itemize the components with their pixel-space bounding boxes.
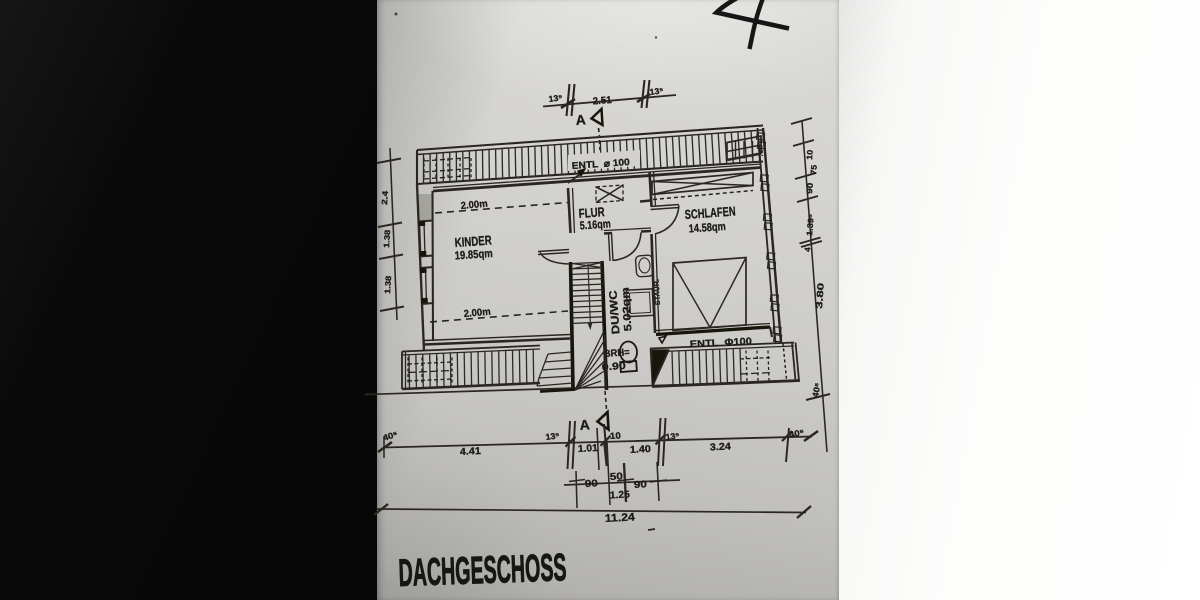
svg-text:1.38: 1.38 [383, 275, 393, 294]
svg-text:90: 90 [805, 182, 815, 194]
svg-text:10: 10 [805, 149, 815, 160]
svg-text:13⁵: 13⁵ [548, 92, 563, 104]
svg-text:13⁵: 13⁵ [665, 430, 680, 442]
svg-text:75: 75 [809, 164, 819, 175]
svg-text:50: 50 [610, 471, 624, 483]
svg-text:10: 10 [610, 430, 622, 441]
svg-text:BRH=: BRH= [603, 347, 630, 360]
svg-text:A: A [579, 416, 590, 433]
svg-text:3.80: 3.80 [814, 283, 826, 310]
svg-text:90: 90 [585, 478, 599, 490]
svg-text:4.41: 4.41 [460, 446, 482, 458]
svg-text:13⁵: 13⁵ [649, 85, 664, 97]
svg-text:90: 90 [634, 479, 648, 491]
svg-text:13⁵: 13⁵ [545, 430, 560, 442]
svg-text:1.25: 1.25 [610, 489, 631, 501]
svg-text:DACHGESCHOSS: DACHGESCHOSS [398, 546, 567, 595]
svg-text:1.40: 1.40 [630, 444, 652, 456]
svg-text:2.00m: 2.00m [463, 307, 491, 320]
svg-text:A: A [575, 111, 586, 128]
svg-text:2.51: 2.51 [592, 95, 612, 108]
svg-text:1.01: 1.01 [578, 443, 599, 455]
svg-text:3.24: 3.24 [710, 441, 732, 453]
svg-text:1.38: 1.38 [382, 229, 392, 248]
svg-text:2.4: 2.4 [380, 190, 390, 205]
svg-text:11.24: 11.24 [605, 511, 637, 525]
